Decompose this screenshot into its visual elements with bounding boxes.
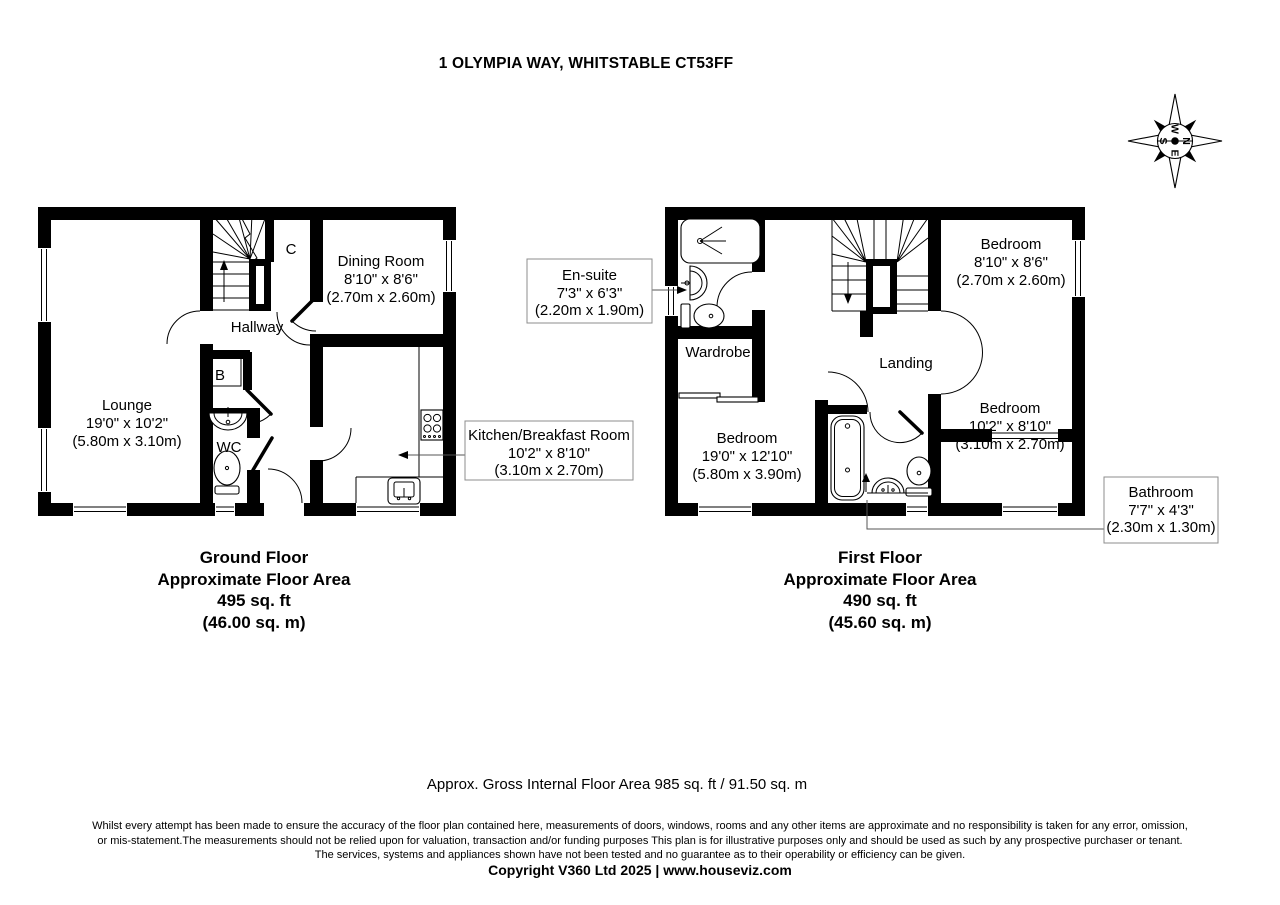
dining-dims-imperial: 8'10" x 8'6" bbox=[344, 271, 418, 288]
cupboard-c-label: C bbox=[286, 241, 297, 258]
dining-door-arc bbox=[292, 321, 316, 331]
bedroom-left-dims-metric: (5.80m x 3.90m) bbox=[692, 466, 801, 483]
ensuite-toilet-icon bbox=[681, 304, 724, 328]
gf-summary-label: Approximate Floor Area bbox=[94, 569, 414, 591]
kitchen-dims-metric: (3.10m x 2.70m) bbox=[494, 462, 603, 479]
kitchen-dims-imperial: 10'2" x 8'10" bbox=[508, 445, 590, 462]
shower-icon bbox=[681, 219, 760, 263]
bath-icon bbox=[831, 416, 864, 500]
hallway-label: Hallway bbox=[231, 319, 284, 336]
page-title: 1 OLYMPIA WAY, WHITSTABLE CT53FF bbox=[0, 55, 1172, 73]
bedroom-br-dims-imperial: 10'2" x 8'10" bbox=[969, 418, 1051, 435]
compass-e: E bbox=[1169, 149, 1181, 156]
ensuite-dims-imperial: 7'3" x 6'3" bbox=[557, 285, 623, 302]
bathroom-door-leaf bbox=[900, 412, 922, 433]
bedroom-tr-label: Bedroom bbox=[981, 236, 1042, 253]
ensuite-sink-icon bbox=[681, 266, 707, 300]
disclaimer-line-3: The services, systems and appliances sho… bbox=[0, 848, 1280, 863]
bedroom-left-dims-imperial: 19'0" x 12'10" bbox=[702, 448, 793, 465]
dining-door-leaf bbox=[292, 297, 316, 321]
disclaimer: Whilst every attempt has been made to en… bbox=[0, 819, 1280, 863]
gf-understairs-closet bbox=[253, 263, 268, 308]
wc-label: WC bbox=[217, 439, 242, 456]
gf-summary-area-m: (46.00 sq. m) bbox=[94, 612, 414, 634]
compass-w: W bbox=[1169, 124, 1181, 134]
bathroom-dims-imperial: 7'7" x 4'3" bbox=[1128, 502, 1194, 519]
bathroom-label: Bathroom bbox=[1128, 484, 1193, 501]
disclaimer-line-2: or mis-statement.The measurements should… bbox=[0, 834, 1280, 849]
lounge-door-arc bbox=[167, 311, 200, 344]
copyright: Copyright V360 Ltd 2025 | www.houseviz.c… bbox=[0, 862, 1280, 878]
ground-floor-plan: Lounge 19'0" x 10'2" (5.80m x 3.10m) Hal… bbox=[38, 207, 633, 516]
ff-summary-label: Approximate Floor Area bbox=[720, 569, 1040, 591]
ff-stair-void bbox=[870, 263, 894, 311]
bedroom-br-dims-metric: (3.10m x 2.70m) bbox=[955, 436, 1064, 453]
bedroom-br-label: Bedroom bbox=[980, 400, 1041, 417]
bedroom-doors-arc bbox=[941, 311, 982, 394]
gross-floor-area: Approx. Gross Internal Floor Area 985 sq… bbox=[0, 776, 1234, 793]
bedroom-tr-dims-imperial: 8'10" x 8'6" bbox=[974, 254, 1048, 271]
first-floor-summary: First Floor Approximate Floor Area 490 s… bbox=[720, 547, 1040, 633]
gf-summary-area-ft: 495 sq. ft bbox=[94, 590, 414, 612]
ensuite-callout: En-suite 7'3" x 6'3" (2.20m x 1.90m) bbox=[527, 259, 687, 323]
floorplan-page: N E S W bbox=[0, 0, 1280, 905]
bedroom-tr-dims-metric: (2.70m x 2.60m) bbox=[956, 272, 1065, 289]
hob-icon bbox=[421, 410, 443, 440]
bathroom-toilet-icon bbox=[906, 457, 932, 496]
wc-toilet-icon bbox=[214, 451, 240, 494]
compass-center-dot bbox=[1171, 137, 1179, 145]
dining-dims-metric: (2.70m x 2.60m) bbox=[326, 289, 435, 306]
dining-label: Dining Room bbox=[338, 253, 425, 270]
bathroom-dims-metric: (2.30m x 1.30m) bbox=[1106, 519, 1215, 536]
front-door-arc bbox=[268, 469, 302, 503]
ff-summary-area-m: (45.60 sq. m) bbox=[720, 612, 1040, 634]
disclaimer-line-1: Whilst every attempt has been made to en… bbox=[0, 819, 1280, 834]
bathroom-sink-icon bbox=[872, 478, 904, 493]
ensuite-dims-metric: (2.20m x 1.90m) bbox=[535, 302, 644, 319]
ensuite-label: En-suite bbox=[562, 267, 617, 284]
kitchen-sink-icon bbox=[388, 478, 420, 504]
gf-summary-floor: Ground Floor bbox=[94, 547, 414, 569]
compass-rose: N E S W bbox=[1128, 94, 1222, 188]
kitchen-door-arc bbox=[318, 428, 351, 461]
compass-s: S bbox=[1157, 137, 1169, 144]
ensuite-door-arc bbox=[717, 272, 752, 307]
compass-n: N bbox=[1180, 137, 1192, 145]
kitchen-label: Kitchen/Breakfast Room bbox=[468, 427, 630, 444]
lounge-label: Lounge bbox=[102, 397, 152, 414]
lounge-dims-imperial: 19'0" x 10'2" bbox=[86, 415, 168, 432]
ff-summary-area-ft: 490 sq. ft bbox=[720, 590, 1040, 612]
cupboard-b-label: B bbox=[215, 367, 225, 384]
bedroom-left-label: Bedroom bbox=[717, 430, 778, 447]
ff-summary-floor: First Floor bbox=[720, 547, 1040, 569]
wc-door-leaf bbox=[253, 438, 272, 470]
lounge-dims-metric: (5.80m x 3.10m) bbox=[72, 433, 181, 450]
wardrobe-label: Wardrobe bbox=[685, 344, 750, 361]
floorplan-drawing: N E S W bbox=[0, 0, 1280, 905]
ground-floor-summary: Ground Floor Approximate Floor Area 495 … bbox=[94, 547, 414, 633]
wardrobe-sliding-doors bbox=[679, 393, 758, 402]
first-floor-plan: Bedroom 8'10" x 8'6" (2.70m x 2.60m) Bed… bbox=[527, 207, 1218, 543]
landing-label: Landing bbox=[879, 355, 932, 372]
